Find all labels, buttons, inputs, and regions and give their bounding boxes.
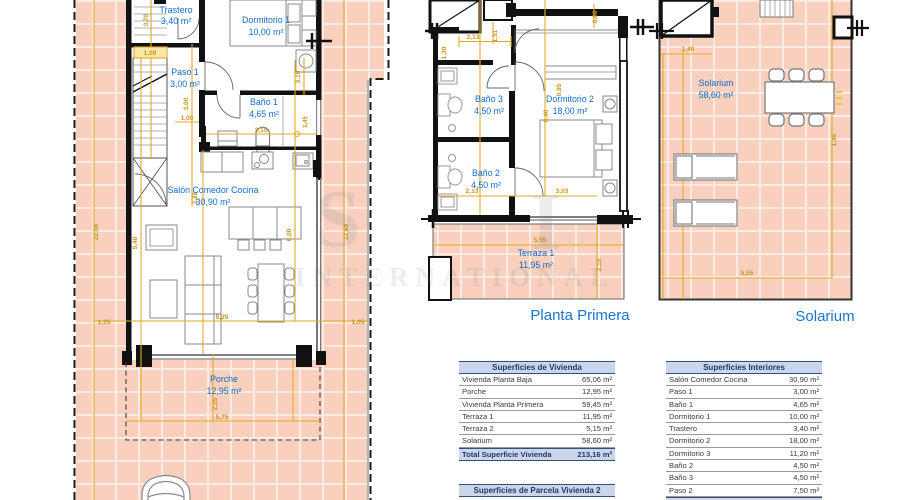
svg-text:6,00: 6,00 xyxy=(286,228,293,241)
svg-text:Dormitorio 2: Dormitorio 2 xyxy=(546,94,594,104)
svg-text:12,95 m²: 12,95 m² xyxy=(207,386,242,396)
svg-text:0,40: 0,40 xyxy=(543,109,550,122)
svg-text:5,75: 5,75 xyxy=(216,414,229,421)
svg-text:Salón Comedor Cocina: Salón Comedor Cocina xyxy=(168,185,259,195)
svg-text:1,40: 1,40 xyxy=(682,46,695,53)
svg-text:1,45: 1,45 xyxy=(303,116,309,128)
svg-text:2,13: 2,13 xyxy=(467,34,480,41)
svg-text:5,40: 5,40 xyxy=(132,236,139,249)
svg-text:1,30: 1,30 xyxy=(441,46,448,59)
svg-text:Paso 1: Paso 1 xyxy=(171,67,198,77)
svg-text:1,45: 1,45 xyxy=(831,133,838,146)
svg-text:22,08: 22,08 xyxy=(93,223,100,240)
svg-text:30,90 m²: 30,90 m² xyxy=(196,197,231,207)
svg-text:3,10: 3,10 xyxy=(295,70,302,83)
svg-text:5,25: 5,25 xyxy=(216,314,229,321)
svg-text:10,00 m²: 10,00 m² xyxy=(249,27,284,37)
svg-text:Solarium: Solarium xyxy=(699,78,734,88)
svg-text:5,55: 5,55 xyxy=(741,270,754,277)
svg-text:Solarium: Solarium xyxy=(795,308,854,325)
svg-text:2,25: 2,25 xyxy=(212,397,219,410)
svg-text:3,00 m²: 3,00 m² xyxy=(170,79,200,89)
svg-text:0,70: 0,70 xyxy=(144,14,150,26)
svg-text:4,50 m²: 4,50 m² xyxy=(474,106,504,116)
svg-text:0,60: 0,60 xyxy=(592,10,599,23)
svg-text:Porche: Porche xyxy=(210,374,238,384)
svg-text:4,65 m²: 4,65 m² xyxy=(249,109,279,119)
svg-text:1,00: 1,00 xyxy=(181,115,194,122)
svg-text:3,00: 3,00 xyxy=(183,97,190,110)
svg-text:1,35: 1,35 xyxy=(98,319,111,326)
svg-text:Dormitorio 1: Dormitorio 1 xyxy=(242,15,290,25)
svg-text:Baño 3: Baño 3 xyxy=(475,94,503,104)
svg-text:1,05: 1,05 xyxy=(352,319,365,326)
svg-text:1,00: 1,00 xyxy=(144,50,157,57)
svg-text:Baño 1: Baño 1 xyxy=(250,97,278,107)
svg-text:Baño 2: Baño 2 xyxy=(472,168,500,178)
svg-text:4,50 m²: 4,50 m² xyxy=(471,180,501,190)
svg-text:58,60 m²: 58,60 m² xyxy=(699,90,734,100)
svg-text:3,40 m²: 3,40 m² xyxy=(161,16,192,26)
svg-text:1,51: 1,51 xyxy=(492,29,499,42)
svg-text:Planta Primera: Planta Primera xyxy=(530,307,630,324)
svg-text:18,00 m²: 18,00 m² xyxy=(553,106,588,116)
svg-text:3,15: 3,15 xyxy=(255,127,268,134)
svg-text:Trastero: Trastero xyxy=(159,5,192,15)
